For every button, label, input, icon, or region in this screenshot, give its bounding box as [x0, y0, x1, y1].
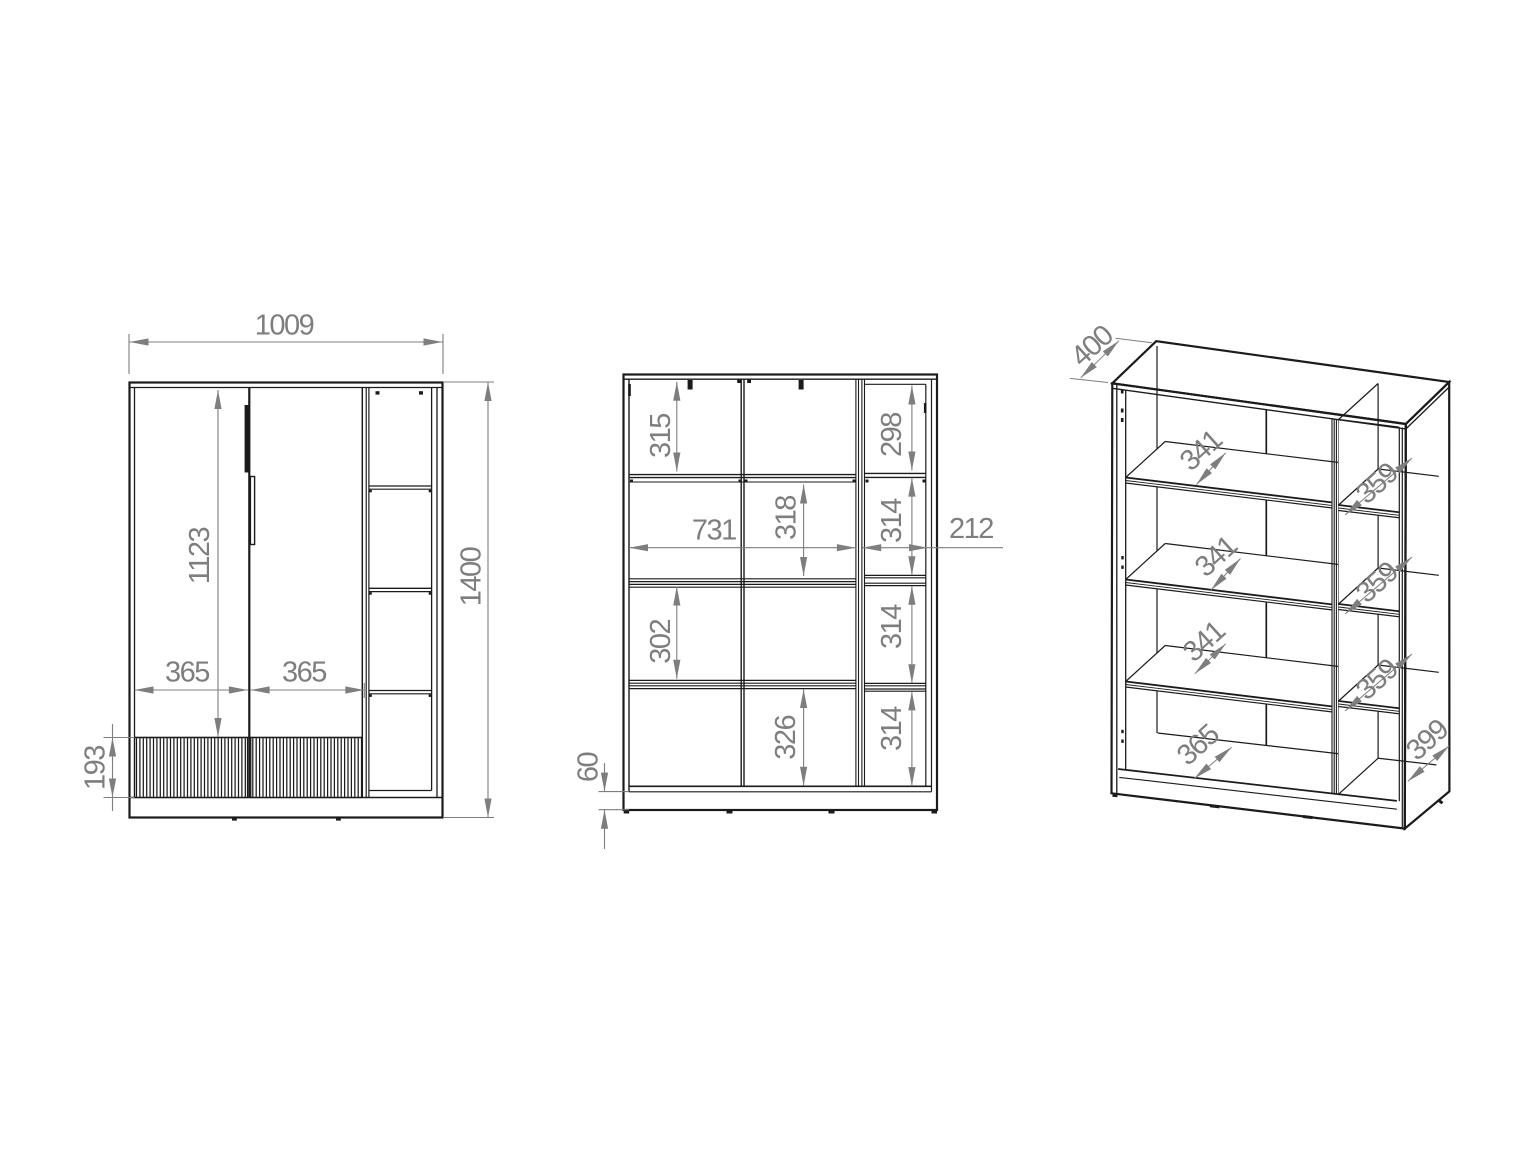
svg-text:365: 365 — [165, 657, 209, 689]
svg-text:193: 193 — [80, 746, 112, 790]
svg-text:60: 60 — [573, 753, 605, 783]
svg-text:314: 314 — [876, 706, 908, 751]
svg-text:314: 314 — [876, 498, 908, 543]
svg-text:318: 318 — [771, 496, 803, 540]
svg-text:302: 302 — [645, 619, 677, 663]
svg-text:1123: 1123 — [184, 527, 216, 584]
svg-text:315: 315 — [645, 414, 677, 458]
svg-text:298: 298 — [876, 413, 908, 457]
svg-text:1400: 1400 — [456, 547, 488, 606]
svg-text:212: 212 — [949, 513, 993, 545]
svg-text:1009: 1009 — [255, 310, 314, 342]
svg-text:365: 365 — [282, 657, 326, 689]
svg-text:326: 326 — [770, 715, 802, 759]
svg-text:314: 314 — [876, 604, 908, 649]
svg-text:731: 731 — [692, 515, 736, 547]
